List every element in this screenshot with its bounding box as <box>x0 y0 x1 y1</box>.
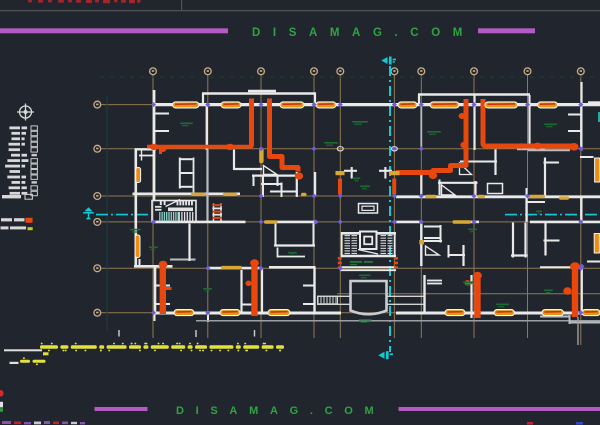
svg-text:DISAMAG.COM: DISAMAG.COM <box>252 27 475 39</box>
svg-text:DISAMAG.COM: DISAMAG.COM <box>176 405 385 417</box>
